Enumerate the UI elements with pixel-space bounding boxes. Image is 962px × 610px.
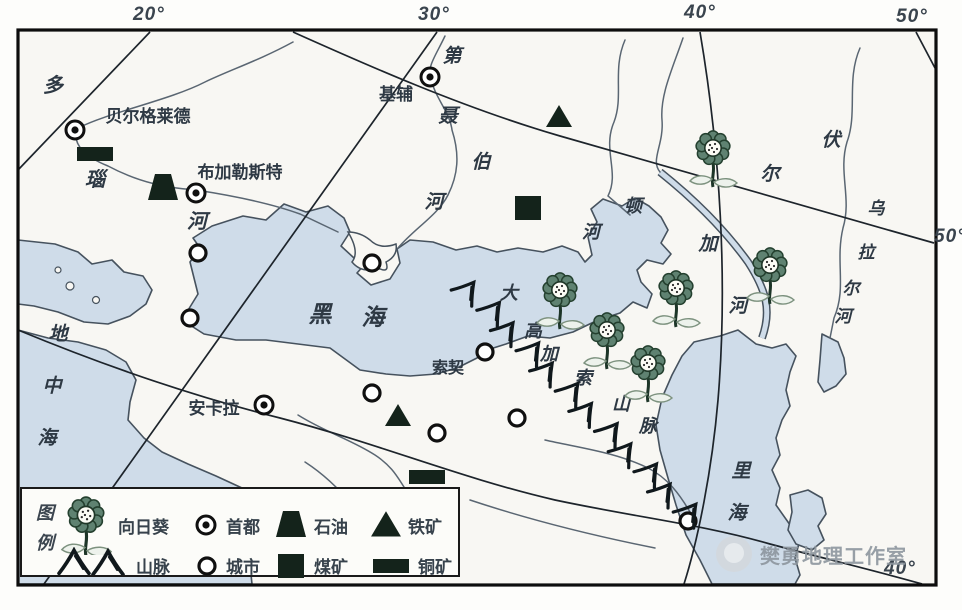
city-icon	[477, 344, 493, 360]
danube-river-label: 多	[43, 74, 65, 97]
longitude-label-20: 20°	[133, 4, 165, 26]
black-sea-label: 海	[362, 304, 389, 330]
island	[93, 297, 100, 304]
sunflower-icon	[60, 493, 112, 555]
capital-icon	[190, 509, 222, 541]
legend-box: 图例 向日葵 首都 石油 铁矿 山脉 城市 煤矿 铜矿	[20, 487, 460, 577]
mediterranean-sea-label: 海	[37, 427, 59, 449]
legend-label-coal: 煤矿	[314, 553, 348, 578]
island	[55, 267, 61, 273]
copper-ore-icon	[409, 470, 445, 484]
longitude-label-50: 50°	[896, 6, 928, 28]
map-screenshot: 多瑙河贝尔格莱德布加勒斯特基辅第聂伯河顿河伏尔加河乌拉尔河黑海地中海里海索契安卡…	[0, 0, 962, 610]
belgrade-label: 贝尔格莱德	[106, 106, 191, 126]
volga-river-label: 伏	[821, 129, 843, 151]
latitude-label-50: 50°	[934, 226, 962, 248]
caucasus-mountains-label: 大	[500, 283, 520, 303]
legend-label-city: 城市	[226, 553, 260, 578]
copper-ore-icon	[77, 147, 113, 161]
city-icon	[192, 551, 222, 581]
kyiv-capital-icon	[421, 68, 439, 86]
bucharest-capital-icon	[187, 184, 205, 202]
longitude-label-40: 40°	[684, 2, 716, 24]
longitude-label-30: 30°	[418, 4, 450, 26]
legend-label-iron: 铁矿	[408, 513, 442, 538]
city-icon	[429, 425, 445, 441]
sochi-label: 索契	[432, 358, 465, 377]
city-icon	[364, 385, 380, 401]
black-sea-label: 黑	[309, 301, 334, 327]
watermark: 樊勇地理工作室	[716, 536, 907, 572]
caucasus-mountains-label: 脉	[638, 416, 660, 436]
ankara-capital-icon	[255, 396, 273, 414]
volga-river-label: 尔	[760, 163, 782, 185]
city-icon	[182, 310, 198, 326]
city-icon	[364, 255, 380, 271]
kyiv-label: 基辅	[378, 84, 413, 104]
iron-ore-icon	[370, 507, 402, 539]
coal-icon	[515, 196, 541, 220]
volga-river-label: 加	[697, 233, 720, 255]
legend-label-mountains: 山脉	[136, 553, 170, 578]
dnieper-river-label: 伯	[471, 151, 492, 173]
bucharest-label: 布加勒斯特	[198, 162, 283, 182]
city-icon	[190, 245, 206, 261]
legend-label-capital: 首都	[226, 513, 260, 538]
caspian-sea-label: 里	[731, 461, 752, 482]
caucasus-mountains-label: 加	[539, 344, 561, 364]
belgrade-capital-icon	[66, 121, 84, 139]
caspian-sea-label: 海	[727, 502, 749, 524]
island	[66, 282, 74, 290]
oil-icon	[274, 507, 308, 541]
ankara-label: 安卡拉	[189, 398, 240, 418]
coal-icon	[276, 551, 306, 581]
watermark-text: 樊勇地理工作室	[760, 540, 907, 569]
mountains-icon	[52, 547, 132, 575]
mediterranean-sea-label: 中	[42, 375, 63, 397]
copper-ore-icon	[370, 555, 412, 577]
ural-river-label: 乌	[868, 199, 886, 218]
city-icon	[509, 410, 525, 426]
legend-label-oil: 石油	[314, 513, 348, 538]
watermark-logo-icon	[716, 536, 752, 572]
legend-label-sunflower: 向日葵	[118, 513, 169, 538]
mediterranean-sea-label: 地	[48, 323, 70, 345]
legend-label-copper: 铜矿	[418, 553, 452, 578]
dnieper-river-label: 聂	[437, 106, 460, 127]
